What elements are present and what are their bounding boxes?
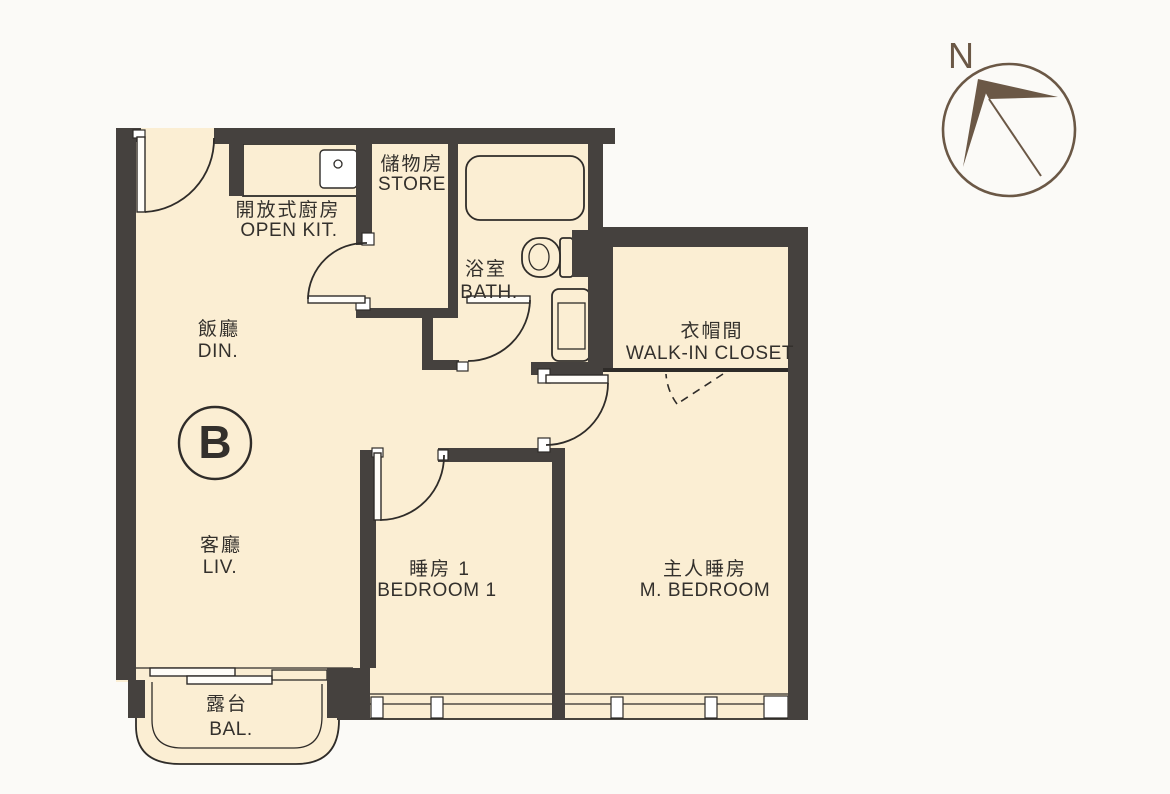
store-bottom-wall — [356, 308, 458, 318]
compass-needle-tail — [989, 99, 1041, 176]
closet-top-wall — [598, 227, 808, 247]
window-mullion — [371, 697, 383, 718]
label-store-en: STORE — [378, 174, 446, 195]
top-wall-main — [214, 128, 615, 144]
toilet-tank — [560, 238, 573, 277]
toilet — [522, 238, 573, 277]
left-wall — [116, 128, 136, 680]
left-wall-foot — [128, 680, 145, 718]
window-mullion — [611, 697, 623, 718]
hall-wall-stub-h — [433, 360, 459, 370]
toilet-wall-stub — [572, 230, 590, 277]
label-master-bedroom-cjk: 主人睡房 — [663, 558, 747, 580]
label-walk-in-closet-cjk: 衣帽間 — [680, 320, 743, 342]
balcony-right-block — [327, 668, 353, 718]
label-living-cjk: 客廳 — [200, 534, 242, 556]
label-balcony-cjk: 露台 — [206, 693, 248, 715]
compass-north-label: N — [948, 35, 974, 76]
label-bedroom1-en: BEDROOM 1 — [377, 580, 496, 601]
store-bath-divider — [448, 140, 458, 312]
label-bath-en: BATH. — [460, 282, 518, 303]
label-dining-en: DIN. — [198, 341, 238, 362]
bathtub — [466, 156, 584, 220]
hall-wall-stub-v — [422, 312, 433, 370]
closet-left-wall — [600, 247, 613, 372]
right-wall — [788, 247, 808, 720]
label-master-bedroom-en: M. BEDROOM — [640, 580, 771, 601]
compass-rose: N — [943, 35, 1075, 196]
label-bedroom1-cjk: 睡房 1 — [409, 558, 471, 580]
window-mullion — [705, 697, 717, 718]
compass-needle-right — [978, 79, 1058, 99]
label-bath-cjk: 浴室 — [465, 258, 507, 280]
bedrooms-divider-wall — [552, 460, 565, 720]
window-end-block — [764, 696, 788, 718]
label-dining-cjk: 飯廳 — [198, 318, 240, 340]
floor-plan-page: B 開放式廚房 OPEN KIT. 儲物房 STORE 浴室 BATH. 衣帽間… — [0, 0, 1170, 794]
compass-needle-left — [963, 79, 987, 167]
kitchen-wall-stub — [229, 138, 243, 196]
floor-plan-canvas: B 開放式廚房 OPEN KIT. 儲物房 STORE 浴室 BATH. 衣帽間… — [0, 0, 1170, 794]
kitchen-sink — [320, 150, 357, 188]
wash-basin — [552, 289, 590, 361]
label-walk-in-closet-en: WALK-IN CLOSET — [626, 343, 794, 364]
window-mullion — [431, 697, 443, 718]
label-living-en: LIV. — [203, 557, 237, 578]
closet-bottom-edge — [603, 368, 788, 372]
unit-label: B — [198, 416, 231, 468]
label-open-kitchen-en: OPEN KIT. — [240, 220, 337, 241]
kitchen-counter — [243, 144, 358, 196]
store-left-wall — [356, 128, 372, 245]
label-open-kitchen-cjk: 開放式廚房 — [235, 198, 340, 221]
label-balcony-en: BAL. — [209, 719, 253, 740]
label-store-cjk: 儲物房 — [380, 153, 443, 175]
